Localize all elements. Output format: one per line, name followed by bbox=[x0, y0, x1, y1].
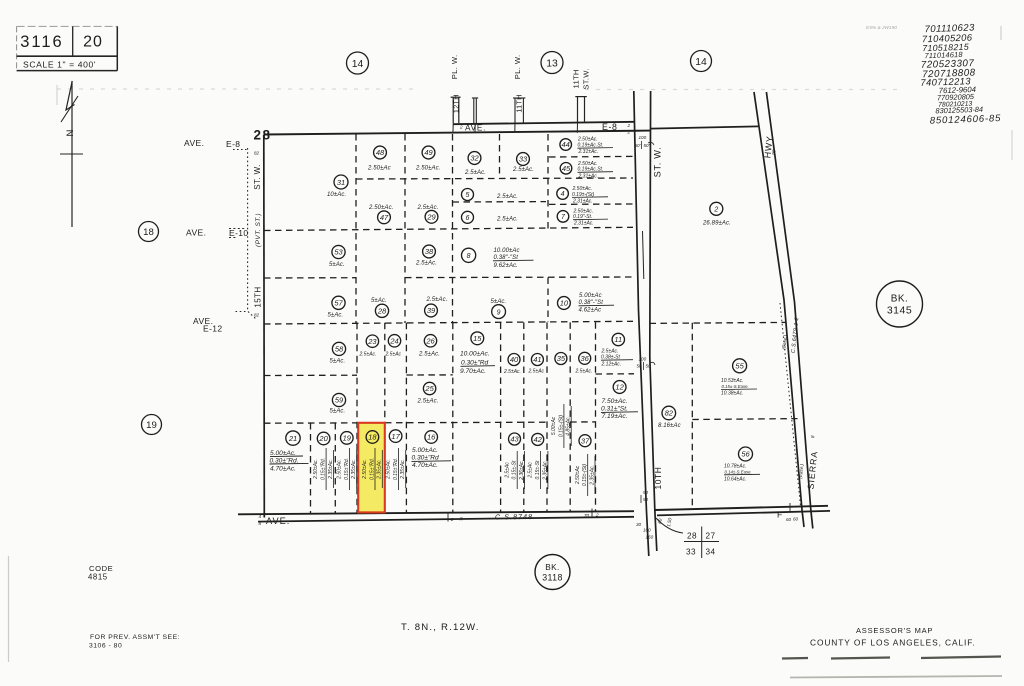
svg-text:55: 55 bbox=[735, 362, 744, 371]
svg-text:4.70±Ac.: 4.70±Ac. bbox=[270, 465, 296, 472]
svg-text:26.89±Ac.: 26.89±Ac. bbox=[702, 221, 731, 227]
svg-text:9: 9 bbox=[497, 309, 501, 316]
svg-text:E-8: E-8 bbox=[226, 139, 240, 149]
svg-text:8.16±Ac: 8.16±Ac bbox=[658, 423, 681, 429]
svg-text:N: N bbox=[65, 129, 76, 136]
svg-text:26: 26 bbox=[425, 337, 435, 346]
svg-text:90: 90 bbox=[771, 149, 777, 155]
svg-text:35: 35 bbox=[557, 354, 566, 363]
svg-text:2.36±Ac.: 2.36±Ac. bbox=[519, 460, 525, 481]
svg-text:2.5±Ac.: 2.5±Ac. bbox=[496, 217, 518, 223]
svg-text:49: 49 bbox=[424, 148, 433, 157]
svg-text:4.62±Ac: 4.62±Ac bbox=[579, 307, 602, 313]
svg-text:2.5±Ac.: 2.5±Ac. bbox=[503, 369, 521, 375]
svg-text:14: 14 bbox=[352, 59, 364, 70]
svg-text:100: 100 bbox=[639, 135, 647, 140]
svg-text:ST. W.: ST. W. bbox=[253, 164, 262, 190]
svg-text:2.5±Ac: 2.5±Ac bbox=[528, 462, 534, 479]
svg-text:2.31±Ac.: 2.31±Ac. bbox=[578, 173, 599, 179]
svg-text:9.70±Ac.: 9.70±Ac. bbox=[460, 368, 486, 375]
svg-text:2.35±Ac.: 2.35±Ac. bbox=[542, 460, 548, 481]
svg-text:6: 6 bbox=[466, 215, 470, 222]
svg-text:PL. W.: PL. W. bbox=[513, 55, 522, 80]
svg-text:33: 33 bbox=[519, 155, 528, 164]
svg-text:2.12±Ac.: 2.12±Ac. bbox=[601, 361, 622, 367]
svg-text:2.31±Ac.: 2.31±Ac. bbox=[572, 198, 593, 204]
svg-text:37: 37 bbox=[581, 436, 590, 445]
svg-text:13: 13 bbox=[546, 58, 558, 69]
svg-text:0.30±"Rd: 0.30±"Rd bbox=[461, 359, 489, 366]
svg-text:2: 2 bbox=[713, 207, 718, 214]
svg-text:20: 20 bbox=[83, 34, 103, 51]
svg-text:0.15±-(St): 0.15±-(St) bbox=[558, 415, 564, 438]
svg-text:25: 25 bbox=[424, 384, 434, 393]
svg-text:58: 58 bbox=[335, 345, 344, 354]
svg-text:28: 28 bbox=[253, 128, 271, 143]
svg-text:2.50±Ac.: 2.50±Ac. bbox=[313, 459, 319, 480]
svg-text:45: 45 bbox=[562, 164, 571, 173]
svg-text:2.31±Ac.: 2.31±Ac. bbox=[573, 221, 594, 227]
svg-text:2.50±Ac.: 2.50±Ac. bbox=[577, 136, 598, 142]
svg-text:11TH: 11TH bbox=[514, 94, 523, 112]
svg-text:2: 2 bbox=[450, 517, 454, 522]
svg-text:PL. W.: PL. W. bbox=[450, 55, 459, 80]
svg-text:2.50±Ac.: 2.50±Ac. bbox=[415, 166, 440, 172]
svg-text:F: F bbox=[777, 510, 783, 520]
svg-text:82: 82 bbox=[254, 151, 260, 156]
svg-text:2.50±Ac: 2.50±Ac bbox=[367, 166, 391, 172]
svg-text:50: 50 bbox=[643, 490, 649, 495]
svg-text:BK.: BK. bbox=[891, 294, 909, 305]
svg-text:19: 19 bbox=[146, 420, 157, 431]
svg-text:BK.: BK. bbox=[545, 563, 559, 572]
svg-text:2.5±Ac.: 2.5±Ac. bbox=[415, 261, 437, 267]
svg-text:2.5±Ac: 2.5±Ac bbox=[528, 369, 545, 375]
svg-text:100: 100 bbox=[643, 528, 651, 533]
svg-text:0.15±-St: 0.15±-St bbox=[535, 460, 541, 479]
svg-text:2.31±Ac.: 2.31±Ac. bbox=[578, 149, 599, 155]
svg-text:5±Ac.: 5±Ac. bbox=[330, 409, 346, 415]
svg-text:28: 28 bbox=[377, 307, 387, 316]
svg-text:2.5±Ac.: 2.5±Ac. bbox=[426, 297, 448, 303]
svg-text:2: 2 bbox=[595, 513, 599, 518]
svg-text:SCALE 1" = 400': SCALE 1" = 400' bbox=[23, 60, 96, 70]
svg-text:8: 8 bbox=[259, 521, 262, 526]
svg-text:10±Ac.: 10±Ac. bbox=[327, 192, 346, 198]
svg-text:48: 48 bbox=[376, 148, 385, 157]
svg-text:AVE.: AVE. bbox=[465, 124, 486, 133]
svg-text:23: 23 bbox=[367, 337, 377, 346]
svg-text:4815: 4815 bbox=[88, 573, 108, 582]
svg-text:2.5±Ac.: 2.5±Ac. bbox=[496, 194, 518, 200]
svg-text:5: 5 bbox=[466, 192, 470, 199]
svg-text:60: 60 bbox=[786, 517, 792, 522]
svg-text:2.5±Ac.: 2.5±Ac. bbox=[418, 352, 440, 358]
svg-text:3116: 3116 bbox=[20, 33, 63, 51]
svg-text:2.5±Ac.: 2.5±Ac. bbox=[464, 170, 486, 176]
svg-text:41: 41 bbox=[533, 355, 541, 364]
svg-text:E-8: E-8 bbox=[602, 122, 618, 132]
svg-text:2.50±Ac.: 2.50±Ac. bbox=[337, 459, 343, 480]
svg-text:0.15±"Rd.: 0.15±"Rd. bbox=[393, 458, 399, 480]
svg-text:53: 53 bbox=[334, 248, 343, 257]
svg-text:4.85±Ac.: 4.85±Ac. bbox=[566, 416, 572, 436]
svg-text:31: 31 bbox=[337, 178, 345, 187]
svg-text:4: 4 bbox=[561, 191, 565, 198]
svg-text:3106 - 80: 3106 - 80 bbox=[89, 643, 122, 650]
svg-text:ST. W.: ST. W. bbox=[653, 147, 663, 178]
svg-text:57: 57 bbox=[334, 299, 343, 308]
svg-text:38: 38 bbox=[425, 247, 434, 256]
svg-text:24: 24 bbox=[389, 337, 398, 346]
svg-text:11: 11 bbox=[614, 335, 622, 344]
svg-text:12TH: 12TH bbox=[452, 94, 461, 113]
svg-text:10.00±Ac: 10.00±Ac bbox=[494, 248, 520, 254]
svg-text:21: 21 bbox=[288, 434, 297, 443]
svg-text:10.64±Ac.: 10.64±Ac. bbox=[724, 477, 746, 483]
svg-text:56: 56 bbox=[741, 450, 750, 459]
svg-text:47: 47 bbox=[380, 213, 389, 222]
svg-text:0.14±-S.Ease.: 0.14±-S.Ease. bbox=[725, 469, 752, 474]
svg-text:27: 27 bbox=[706, 532, 716, 541]
svg-text:11TH: 11TH bbox=[571, 69, 580, 88]
svg-text:2.5±Ac.: 2.5±Ac. bbox=[601, 348, 619, 354]
svg-text:0.15±"Rd.: 0.15±"Rd. bbox=[344, 458, 350, 480]
svg-text:12: 12 bbox=[615, 383, 624, 392]
svg-text:AVE.: AVE. bbox=[186, 228, 206, 238]
svg-text:33: 33 bbox=[686, 548, 696, 557]
svg-text:17: 17 bbox=[391, 432, 400, 441]
svg-text:50': 50' bbox=[644, 143, 650, 148]
svg-text:29: 29 bbox=[426, 213, 436, 222]
svg-text:44: 44 bbox=[562, 140, 570, 149]
svg-text:2: 2 bbox=[627, 130, 631, 135]
svg-text:-R: -R bbox=[458, 517, 464, 522]
svg-text:10.00±Ac.: 10.00±Ac. bbox=[460, 351, 490, 358]
svg-text:AVE.: AVE. bbox=[184, 138, 204, 148]
svg-text:2: 2 bbox=[459, 125, 463, 130]
svg-text:E-10: E-10 bbox=[229, 228, 249, 238]
svg-text:2.50±Ac.: 2.50±Ac. bbox=[386, 459, 392, 480]
svg-text:0.15±-S.Ease.: 0.15±-S.Ease. bbox=[722, 384, 749, 389]
svg-text:14: 14 bbox=[695, 57, 707, 68]
svg-text:2.35±Ac.: 2.35±Ac. bbox=[328, 459, 334, 480]
svg-text:AVE.: AVE. bbox=[266, 516, 290, 526]
svg-text:2.5±Ac.: 2.5±Ac. bbox=[359, 352, 377, 358]
svg-text:2.5±Ac.: 2.5±Ac. bbox=[417, 399, 439, 405]
svg-text:2.50±Ac.: 2.50±Ac. bbox=[362, 459, 368, 480]
svg-text:39: 39 bbox=[427, 306, 436, 315]
svg-text:5.00±Ac: 5.00±Ac bbox=[551, 416, 557, 435]
svg-text:36: 36 bbox=[581, 354, 590, 363]
svg-text:ST.W.: ST.W. bbox=[581, 68, 590, 89]
svg-text:(PVT. ST.): (PVT. ST.) bbox=[255, 213, 262, 247]
svg-text:2.5±Ac.: 2.5±Ac. bbox=[417, 205, 439, 211]
svg-text:0.15±-St: 0.15±-St bbox=[512, 460, 518, 479]
svg-text:32: 32 bbox=[470, 154, 479, 163]
svg-text:60: 60 bbox=[793, 517, 799, 522]
svg-text:50: 50 bbox=[643, 497, 649, 502]
svg-text:2.50±Ac: 2.50±Ac bbox=[575, 465, 581, 485]
svg-text:3145: 3145 bbox=[887, 305, 912, 317]
svg-text:2.50±Ac.: 2.50±Ac. bbox=[368, 205, 393, 211]
svg-text:2.35±Ac.: 2.35±Ac. bbox=[377, 459, 383, 480]
svg-text:30: 30 bbox=[636, 522, 642, 527]
svg-text:40: 40 bbox=[510, 355, 519, 364]
svg-text:18: 18 bbox=[368, 433, 377, 442]
svg-text:2.35±Ac.: 2.35±Ac. bbox=[400, 459, 406, 480]
svg-text:50: 50 bbox=[646, 364, 652, 369]
svg-text:4: 4 bbox=[259, 514, 262, 519]
svg-text:2.35±Ac.: 2.35±Ac. bbox=[589, 465, 595, 486]
svg-text:70: 70 bbox=[584, 513, 590, 518]
svg-text:2.5±Ac: 2.5±Ac bbox=[504, 462, 510, 479]
svg-text:2.35±Ac.: 2.35±Ac. bbox=[351, 459, 357, 480]
svg-text:0.38"-"St: 0.38"-"St bbox=[494, 255, 519, 261]
svg-text:100: 100 bbox=[639, 357, 647, 362]
svg-text:15: 15 bbox=[473, 334, 482, 343]
svg-text:E5% & JW190: E5% & JW190 bbox=[866, 25, 897, 31]
svg-text:10TH: 10TH bbox=[653, 467, 663, 490]
svg-text:9.62±Ac.: 9.62±Ac. bbox=[494, 263, 518, 269]
svg-text:50': 50' bbox=[635, 143, 641, 148]
svg-text:0.30±"Rd: 0.30±"Rd bbox=[412, 455, 440, 462]
svg-text:4.70±Ac.: 4.70±Ac. bbox=[412, 462, 438, 469]
svg-text:7.19±Ac.: 7.19±Ac. bbox=[602, 413, 628, 420]
svg-text:82: 82 bbox=[254, 313, 260, 318]
svg-text:82: 82 bbox=[665, 409, 674, 418]
svg-text:2.5±Ac.: 2.5±Ac. bbox=[512, 167, 534, 173]
svg-text:19: 19 bbox=[343, 434, 352, 443]
svg-text:FOR PREV. ASSM'T SEE:: FOR PREV. ASSM'T SEE: bbox=[90, 634, 180, 641]
svg-text:7.50±Ac.: 7.50±Ac. bbox=[602, 398, 628, 405]
svg-text:0.15±-(St): 0.15±-(St) bbox=[582, 464, 588, 487]
svg-text:42: 42 bbox=[534, 435, 543, 444]
svg-text:T. 8N., R.12W.: T. 8N., R.12W. bbox=[401, 622, 480, 633]
svg-text:5±Ac.: 5±Ac. bbox=[328, 312, 344, 318]
svg-text:10.38±Ac.: 10.38±Ac. bbox=[721, 391, 743, 397]
svg-text:5.00±Ac: 5.00±Ac bbox=[579, 293, 602, 299]
svg-text:28: 28 bbox=[687, 532, 697, 541]
svg-text:E-12: E-12 bbox=[203, 324, 223, 334]
svg-text:2: 2 bbox=[627, 123, 631, 128]
svg-text:2.5±Ac.: 2.5±Ac. bbox=[575, 369, 593, 375]
svg-text:59: 59 bbox=[335, 396, 344, 405]
svg-text:5.00±Ac.: 5.00±Ac. bbox=[412, 447, 438, 454]
svg-text:50: 50 bbox=[637, 364, 643, 369]
svg-text:0.38"-"St: 0.38"-"St bbox=[579, 300, 604, 306]
svg-text:0.15±"Rd.: 0.15±"Rd. bbox=[369, 458, 375, 480]
svg-text:0.15±"Rd.: 0.15±"Rd. bbox=[321, 458, 327, 480]
svg-text:3118: 3118 bbox=[542, 573, 563, 583]
svg-text:0.31±"St.: 0.31±"St. bbox=[601, 406, 628, 413]
svg-text:43: 43 bbox=[510, 435, 519, 444]
svg-text:160: 160 bbox=[646, 535, 654, 540]
svg-text:18: 18 bbox=[143, 227, 154, 238]
svg-text:5±Ac.: 5±Ac. bbox=[330, 358, 346, 364]
svg-text:COUNTY OF LOS ANGELES, CALIF.: COUNTY OF LOS ANGELES, CALIF. bbox=[810, 638, 976, 648]
svg-text:34: 34 bbox=[706, 548, 716, 557]
svg-text:C.S.8748: C.S.8748 bbox=[495, 512, 533, 521]
svg-text:10: 10 bbox=[560, 299, 569, 308]
svg-text:16: 16 bbox=[427, 433, 436, 442]
svg-text:5±Ac.: 5±Ac. bbox=[371, 298, 387, 304]
svg-text:20: 20 bbox=[318, 434, 328, 443]
svg-text:15TH: 15TH bbox=[254, 286, 263, 307]
svg-text:ASSESSOR'S MAP: ASSESSOR'S MAP bbox=[856, 626, 933, 635]
svg-text:2.5±Ac: 2.5±Ac bbox=[385, 352, 402, 358]
svg-text:5±Ac.: 5±Ac. bbox=[329, 262, 345, 268]
svg-text:8: 8 bbox=[467, 253, 471, 260]
